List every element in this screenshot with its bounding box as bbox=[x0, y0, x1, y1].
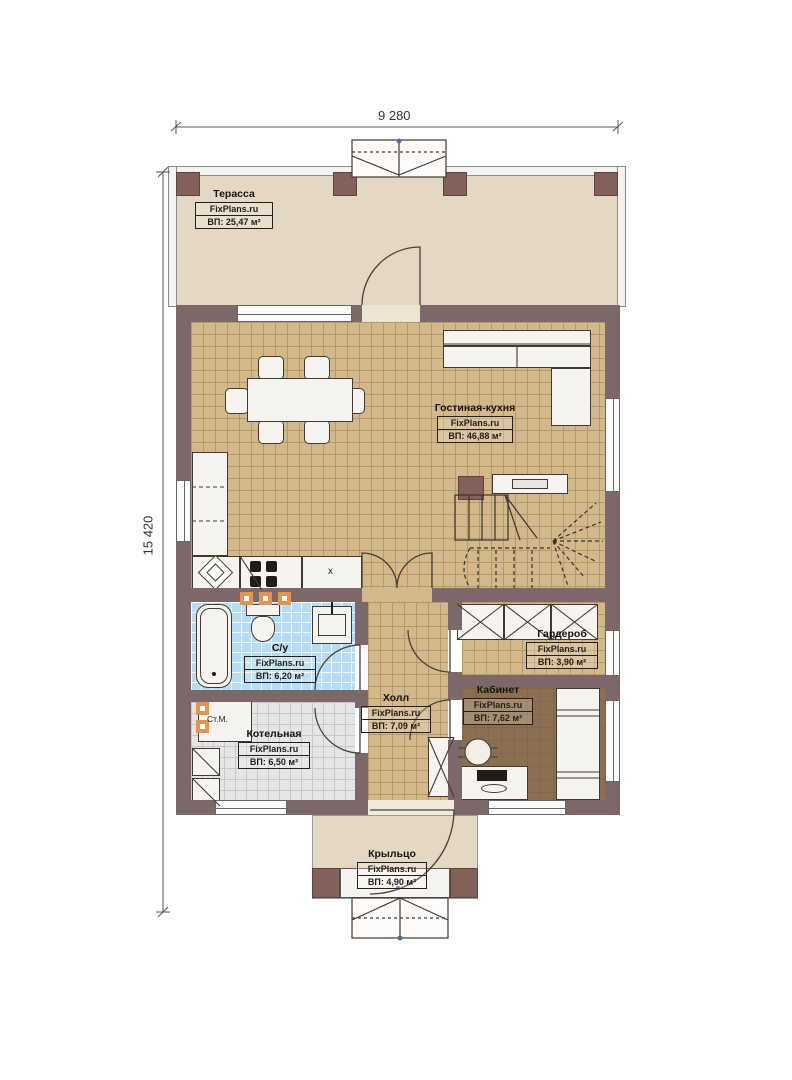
column bbox=[443, 172, 467, 196]
room-name: Гостиная-кухня bbox=[430, 402, 520, 414]
monitor-icon bbox=[477, 770, 507, 781]
porch-pier bbox=[312, 868, 340, 898]
office-cabinet bbox=[556, 688, 600, 800]
shelf-unit bbox=[192, 748, 220, 776]
room-area: ВП: 7,62 м² bbox=[464, 711, 532, 724]
brand-watermark: FixPlans.ru bbox=[438, 417, 512, 429]
window bbox=[605, 630, 620, 676]
room-area: ВП: 6,50 м² bbox=[239, 755, 309, 768]
faucet-icon bbox=[331, 602, 333, 614]
room-label-wardrobe: Гардероб FixPlans.ru ВП: 3,90 м² bbox=[524, 628, 600, 669]
wall-bottom bbox=[176, 800, 215, 815]
dining-chair bbox=[258, 356, 284, 380]
wall-top bbox=[420, 305, 618, 322]
sofa-chaise bbox=[551, 368, 591, 426]
burner-icon bbox=[250, 561, 261, 572]
brand-watermark: FixPlans.ru bbox=[464, 699, 532, 711]
room-label-porch: Крыльцо FixPlans.ru ВП: 4,90 м² bbox=[356, 848, 428, 889]
column bbox=[594, 172, 618, 196]
tv-icon bbox=[512, 479, 548, 489]
window bbox=[237, 305, 352, 322]
kitchen-counter bbox=[192, 452, 228, 556]
keyboard-icon bbox=[481, 784, 507, 793]
column bbox=[333, 172, 357, 196]
room-area: ВП: 25,47 м² bbox=[196, 215, 272, 228]
dining-chair bbox=[304, 356, 330, 380]
dining-chair bbox=[225, 388, 249, 414]
brand-watermark: FixPlans.ru bbox=[196, 203, 272, 215]
dining-chair bbox=[258, 420, 284, 444]
steps-bottom bbox=[352, 898, 448, 941]
washbasin-inner bbox=[318, 614, 346, 636]
brand-watermark: FixPlans.ru bbox=[527, 643, 597, 655]
room-name: Крыльцо bbox=[356, 848, 428, 860]
burner-icon bbox=[266, 561, 277, 572]
wall-left bbox=[176, 542, 191, 815]
terrace-door-opening bbox=[362, 305, 420, 322]
porch-pier bbox=[450, 868, 478, 898]
room-name: Терасса bbox=[192, 188, 276, 200]
vent-icon bbox=[278, 592, 291, 605]
room-name: Гардероб bbox=[524, 628, 600, 640]
room-label-terrace: Терасса FixPlans.ru ВП: 25,47 м² bbox=[192, 188, 276, 229]
wall-right bbox=[605, 676, 620, 700]
window bbox=[488, 800, 566, 815]
room-area: ВП: 3,90 м² bbox=[527, 655, 597, 668]
brand-watermark: FixPlans.ru bbox=[358, 863, 426, 875]
window bbox=[605, 700, 620, 782]
wall-bottom bbox=[287, 800, 368, 815]
dining-chair bbox=[304, 420, 330, 444]
brand-watermark: FixPlans.ru bbox=[245, 657, 315, 669]
wall-bath-hall bbox=[355, 602, 368, 645]
room-label-living: Гостиная-кухня FixPlans.ru ВП: 46,88 м² bbox=[430, 402, 520, 443]
double-door-opening bbox=[362, 588, 432, 602]
wall-bottom bbox=[566, 800, 620, 815]
burner-icon bbox=[266, 576, 277, 587]
vent-icon bbox=[259, 592, 272, 605]
column bbox=[458, 476, 484, 500]
sofa-seat bbox=[443, 346, 591, 368]
terrace-edge-top bbox=[176, 166, 618, 176]
room-label-hall: Холл FixPlans.ru ВП: 7,09 м² bbox=[360, 692, 432, 733]
entry-door-opening bbox=[368, 800, 454, 815]
wall-living-south bbox=[191, 588, 362, 602]
counter-mark: x bbox=[328, 566, 333, 577]
room-label-bathroom: С/у FixPlans.ru ВП: 6,20 м² bbox=[242, 642, 318, 683]
room-name: Котельная bbox=[236, 728, 312, 740]
room-name: Кабинет bbox=[462, 684, 534, 696]
wall-right bbox=[605, 305, 620, 398]
wall-right bbox=[605, 492, 620, 630]
room-area: ВП: 46,88 м² bbox=[438, 429, 512, 442]
wall-hall-east bbox=[448, 672, 462, 700]
wall-top bbox=[352, 305, 362, 322]
washing-machine-label: Ст.М. bbox=[207, 714, 228, 724]
wall-living-south bbox=[432, 588, 605, 602]
wall-bath-boiler bbox=[191, 690, 355, 702]
room-area: ВП: 7,09 м² bbox=[362, 719, 430, 732]
window bbox=[215, 800, 287, 815]
room-area: ВП: 4,90 м² bbox=[358, 875, 426, 888]
brand-watermark: FixPlans.ru bbox=[362, 707, 430, 719]
room-label-office: Кабинет FixPlans.ru ВП: 7,62 м² bbox=[462, 684, 534, 725]
wall-hall-east bbox=[448, 740, 462, 800]
toilet-icon bbox=[251, 616, 275, 642]
sofa-back bbox=[443, 330, 591, 346]
wall-left bbox=[176, 305, 191, 480]
room-label-boiler: Котельная FixPlans.ru ВП: 6,50 м² bbox=[236, 728, 312, 769]
room-name: Холл bbox=[360, 692, 432, 704]
window bbox=[605, 398, 620, 492]
wardrobe-unit bbox=[457, 604, 504, 640]
dining-table bbox=[247, 378, 353, 422]
terrace-edge-right bbox=[617, 166, 626, 307]
room-name: С/у bbox=[242, 642, 318, 654]
toilet-tank bbox=[246, 604, 280, 616]
bathtub-drain bbox=[212, 672, 216, 676]
window bbox=[176, 480, 191, 542]
floor-plan: x Ст.М. bbox=[0, 0, 792, 1080]
burner-icon bbox=[250, 576, 261, 587]
wall-bath-hall bbox=[355, 753, 368, 800]
dimension-width-label: 9 280 bbox=[378, 108, 411, 123]
wall-bottom bbox=[454, 800, 488, 815]
dimension-height-label: 15 420 bbox=[140, 516, 155, 556]
wall-hall-east bbox=[448, 602, 462, 630]
vent-icon bbox=[240, 592, 253, 605]
brand-watermark: FixPlans.ru bbox=[239, 743, 309, 755]
room-area: ВП: 6,20 м² bbox=[245, 669, 315, 682]
